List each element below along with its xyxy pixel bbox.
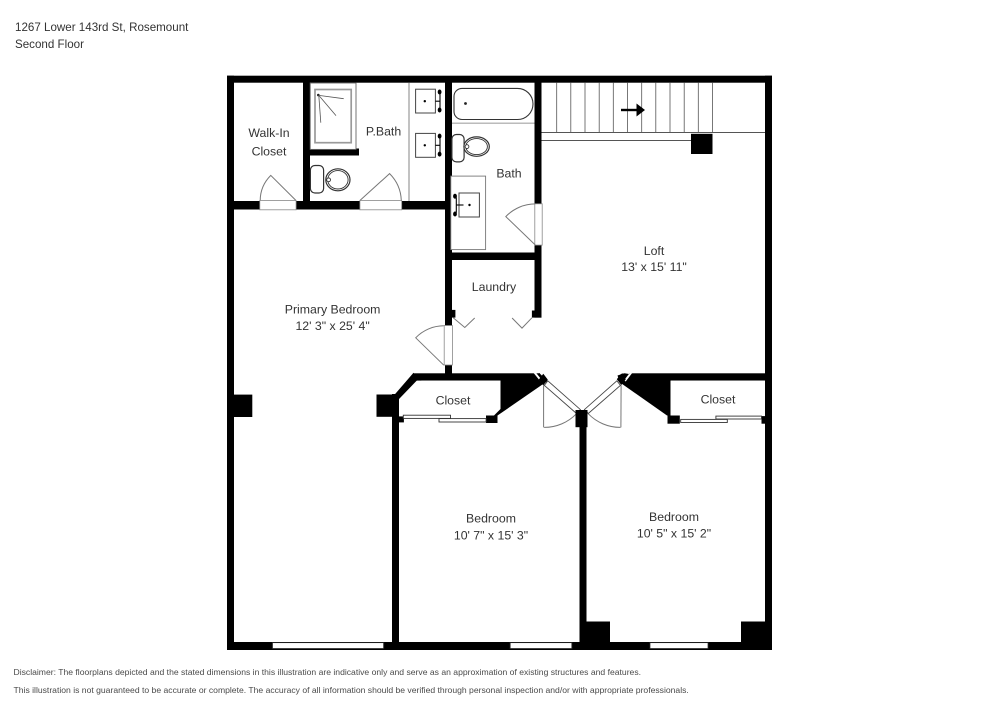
svg-text:Primary Bedroom: Primary Bedroom — [285, 303, 381, 317]
svg-text:Closet: Closet — [252, 144, 287, 158]
svg-text:10' 7" x 15' 3": 10' 7" x 15' 3" — [454, 528, 528, 542]
svg-text:Closet: Closet — [436, 393, 471, 407]
svg-text:Disclaimer: The floorplans dep: Disclaimer: The floorplans depicted and … — [14, 667, 642, 677]
svg-text:Bath: Bath — [496, 167, 521, 181]
svg-text:This illustration is not guara: This illustration is not guaranteed to b… — [14, 685, 689, 695]
svg-text:10' 5" x 15' 2": 10' 5" x 15' 2" — [637, 527, 711, 541]
svg-text:Bedroom: Bedroom — [466, 512, 516, 526]
svg-text:1267 Lower 143rd St, Rosemount: 1267 Lower 143rd St, Rosemount — [15, 21, 189, 34]
svg-text:Laundry: Laundry — [472, 280, 517, 294]
svg-text:Bedroom: Bedroom — [649, 510, 699, 524]
svg-text:Walk-In: Walk-In — [248, 126, 289, 140]
svg-text:Loft: Loft — [644, 244, 665, 258]
svg-text:P.Bath: P.Bath — [366, 125, 401, 139]
svg-text:Second Floor: Second Floor — [15, 38, 84, 51]
svg-text:Closet: Closet — [701, 393, 736, 407]
svg-text:13' x 15' 11": 13' x 15' 11" — [621, 260, 687, 274]
svg-text:12' 3" x 25' 4": 12' 3" x 25' 4" — [295, 319, 369, 333]
